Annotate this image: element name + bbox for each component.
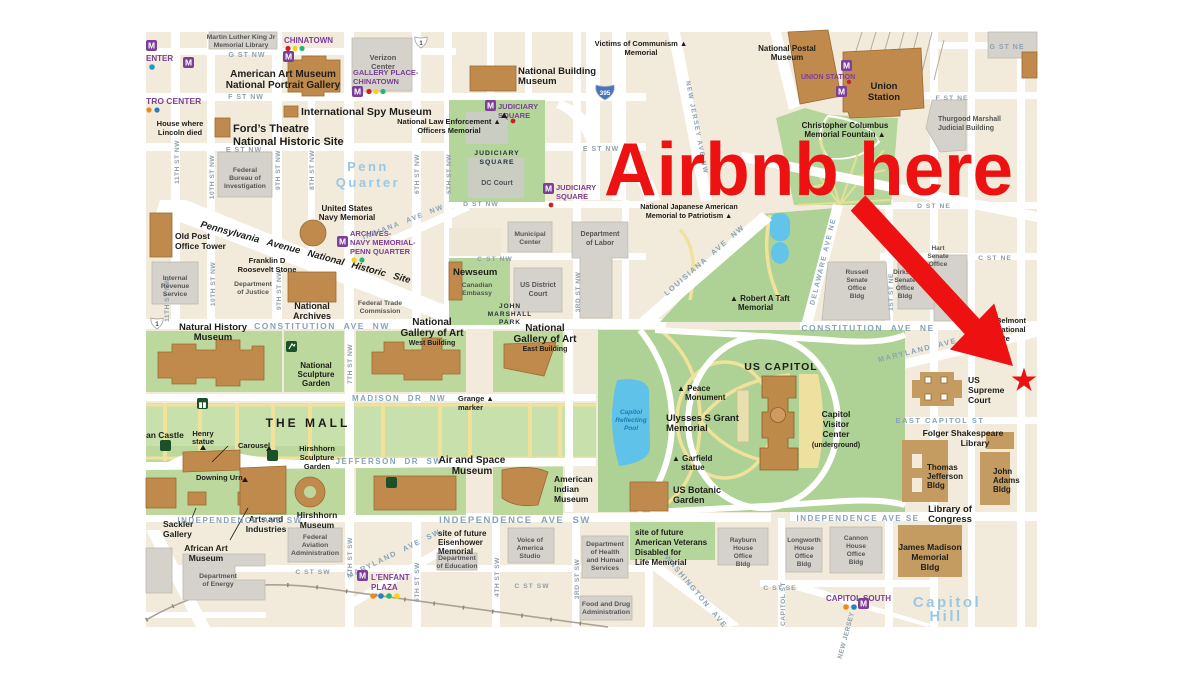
svg-text:American Art Museum: American Art Museum	[230, 69, 336, 80]
svg-text:National Portrait Gallery: National Portrait Gallery	[226, 80, 341, 91]
svg-text:Bldg: Bldg	[850, 293, 864, 300]
svg-text:Monument: Monument	[685, 393, 726, 402]
svg-text:Hirshhorn: Hirshhorn	[299, 444, 335, 453]
svg-text:Garden: Garden	[304, 462, 331, 471]
svg-text:M: M	[545, 184, 552, 194]
svg-text:Newseum: Newseum	[453, 267, 497, 278]
svg-text:M: M	[354, 87, 361, 97]
svg-text:National: National	[294, 301, 330, 311]
svg-text:Supreme: Supreme	[968, 385, 1005, 395]
svg-text:8TH ST NW: 8TH ST NW	[309, 150, 316, 190]
svg-text:JUDICIARY: JUDICIARY	[498, 102, 538, 111]
svg-text:Adams: Adams	[993, 476, 1020, 485]
svg-text:Garden: Garden	[302, 379, 330, 388]
svg-text:3RD ST NW: 3RD ST NW	[575, 271, 582, 312]
svg-text:TRO CENTER: TRO CENTER	[146, 96, 201, 106]
svg-text:SQUARE: SQUARE	[479, 159, 514, 166]
svg-text:Garden: Garden	[673, 495, 705, 505]
svg-text:Archives: Archives	[293, 311, 331, 321]
svg-text:Office: Office	[929, 261, 948, 268]
svg-text:C ST NE: C ST NE	[978, 255, 1012, 262]
svg-text:Bureau of: Bureau of	[229, 175, 261, 182]
svg-text:CHINATOWN: CHINATOWN	[284, 36, 333, 45]
svg-text:Court: Court	[968, 395, 991, 405]
svg-text:Memorial to Patriotism ▲: Memorial to Patriotism ▲	[646, 211, 733, 220]
svg-text:M: M	[148, 41, 155, 51]
svg-text:▲ Peace: ▲ Peace	[677, 384, 711, 393]
svg-text:F ST NW: F ST NW	[228, 94, 264, 101]
svg-text:Eisenhower: Eisenhower	[438, 538, 483, 547]
svg-text:CONSTITUTION AVE NE: CONSTITUTION AVE NE	[801, 323, 934, 333]
svg-text:Congress: Congress	[928, 514, 972, 525]
svg-text:Department: Department	[581, 231, 621, 238]
svg-text:395: 395	[600, 90, 611, 97]
svg-text:Department: Department	[438, 555, 477, 562]
svg-text:statue: statue	[681, 463, 705, 472]
svg-text:Belmont: Belmont	[996, 316, 1027, 325]
svg-text:INDEPENDENCE AVE SW: INDEPENDENCE AVE SW	[177, 516, 302, 525]
svg-text:Reflecting: Reflecting	[615, 417, 646, 424]
svg-text:Voice of: Voice of	[517, 537, 544, 544]
svg-text:Office: Office	[847, 551, 866, 558]
svg-text:House: House	[794, 545, 814, 552]
svg-text:Administration: Administration	[291, 550, 339, 557]
svg-text:Services: Services	[591, 565, 619, 572]
svg-text:Center: Center	[519, 239, 541, 246]
svg-text:Sculpture: Sculpture	[300, 453, 335, 462]
svg-text:Federal: Federal	[233, 167, 257, 174]
svg-text:of Education: of Education	[436, 563, 477, 570]
svg-text:7TH ST SW: 7TH ST SW	[347, 537, 354, 577]
svg-text:MARSHALL: MARSHALL	[488, 311, 532, 318]
svg-text:EAST CAPITOL ST: EAST CAPITOL ST	[895, 416, 984, 425]
svg-text:US CAPITOL: US CAPITOL	[744, 361, 817, 373]
svg-text:3RD ST SW: 3RD ST SW	[574, 559, 581, 600]
svg-text:National Postal: National Postal	[758, 44, 816, 53]
svg-text:African Art: African Art	[184, 543, 228, 553]
svg-text:Navy Memorial: Navy Memorial	[319, 213, 375, 222]
svg-text:American Veterans: American Veterans	[635, 538, 708, 547]
svg-text:Administration: Administration	[582, 609, 630, 616]
svg-text:Food and Drug: Food and Drug	[582, 601, 630, 608]
svg-text:House where: House where	[157, 119, 204, 128]
svg-text:Indian: Indian	[554, 484, 579, 494]
svg-text:INDEPENDENCE AVE SW: INDEPENDENCE AVE SW	[439, 515, 591, 526]
svg-text:East Building: East Building	[523, 346, 568, 353]
svg-text:Service: Service	[163, 291, 187, 298]
svg-text:JUDICIARY: JUDICIARY	[556, 183, 596, 192]
svg-text:THE MALL: THE MALL	[266, 416, 351, 430]
svg-text:Gallery: Gallery	[163, 529, 192, 539]
svg-text:of Health: of Health	[590, 549, 619, 556]
svg-text:C ST SW: C ST SW	[295, 569, 330, 576]
svg-text:Roosevelt Stone: Roosevelt Stone	[238, 265, 297, 274]
svg-text:Museum: Museum	[189, 553, 224, 563]
svg-text:site of future: site of future	[635, 528, 684, 537]
svg-text:D ST NW: D ST NW	[463, 201, 499, 208]
svg-text:Ford’s Theatre: Ford’s Theatre	[233, 123, 309, 135]
svg-text:Department: Department	[586, 541, 625, 548]
svg-text:Memorial Library: Memorial Library	[214, 42, 269, 49]
svg-text:10TH ST NW: 10TH ST NW	[210, 262, 217, 306]
svg-text:UNION STATION: UNION STATION	[801, 74, 855, 81]
svg-text:Municipal: Municipal	[514, 231, 545, 238]
svg-text:National: National	[412, 317, 452, 328]
svg-text:Carousel: Carousel	[238, 441, 270, 450]
svg-text:M: M	[339, 237, 346, 247]
svg-text:Museum: Museum	[554, 494, 589, 504]
svg-text:Memorial: Memorial	[911, 552, 948, 562]
svg-text:JUDICIARY: JUDICIARY	[474, 150, 519, 157]
svg-text:Bldg: Bldg	[849, 559, 863, 566]
svg-text:Museum: Museum	[518, 76, 557, 87]
svg-text:Museum: Museum	[771, 53, 803, 62]
svg-text:Museum: Museum	[194, 332, 233, 343]
svg-text:Office: Office	[795, 553, 814, 560]
svg-text:Union: Union	[871, 81, 898, 92]
svg-text:INDEPENDENCE AVE SE: INDEPENDENCE AVE SE	[796, 514, 919, 523]
svg-text:SQUARE: SQUARE	[556, 192, 588, 201]
svg-text:▲ Robert A Taft: ▲ Robert A Taft	[730, 294, 790, 303]
svg-text:E ST NW: E ST NW	[226, 147, 262, 154]
svg-text:ENTER: ENTER	[146, 54, 173, 63]
svg-text:Department: Department	[199, 573, 238, 580]
svg-text:Bldg: Bldg	[927, 481, 945, 490]
svg-text:Verizon: Verizon	[370, 53, 397, 62]
svg-text:Commission: Commission	[360, 308, 401, 315]
svg-text:G ST NW: G ST NW	[229, 52, 266, 59]
svg-text:Court: Court	[529, 291, 548, 298]
svg-text:C ST NW: C ST NW	[477, 256, 513, 263]
svg-text:Gallery of Art: Gallery of Art	[401, 328, 465, 339]
svg-text:of Justice: of Justice	[237, 289, 269, 296]
svg-text:M: M	[185, 58, 192, 68]
svg-text:US Botanic: US Botanic	[673, 485, 721, 495]
svg-text:PARK: PARK	[499, 319, 521, 326]
svg-text:West Building: West Building	[409, 340, 456, 347]
svg-text:Senate: Senate	[927, 253, 949, 260]
svg-text:G ST NE: G ST NE	[989, 44, 1024, 51]
svg-text:9TH ST NW: 9TH ST NW	[275, 150, 282, 190]
svg-text:John: John	[993, 467, 1012, 476]
svg-text:GALLERY PLACE-: GALLERY PLACE-	[353, 68, 419, 77]
svg-text:CAPITOL ST: CAPITOL ST	[780, 582, 787, 626]
svg-text:PENN QUARTER: PENN QUARTER	[350, 247, 411, 256]
svg-text:CHINATOWN: CHINATOWN	[353, 77, 399, 86]
svg-text:Memorial: Memorial	[738, 303, 773, 312]
svg-text:Victims of Communism ▲: Victims of Communism ▲	[595, 39, 688, 48]
svg-text:Federal: Federal	[303, 534, 327, 541]
svg-text:Quarter: Quarter	[336, 175, 400, 190]
svg-text:Thomas: Thomas	[927, 463, 958, 472]
svg-text:House: House	[733, 545, 753, 552]
svg-text:of Labor: of Labor	[586, 240, 614, 247]
svg-text:▮▮: ▮▮	[199, 402, 207, 409]
svg-text:Center: Center	[823, 429, 851, 439]
svg-text:Pool: Pool	[624, 425, 638, 432]
svg-text:Memorial: Memorial	[666, 423, 708, 434]
svg-text:Bldg: Bldg	[736, 561, 750, 568]
svg-text:Russell: Russell	[845, 269, 868, 276]
svg-text:▲ Garfield: ▲ Garfield	[672, 454, 712, 463]
svg-text:C ST SW: C ST SW	[514, 583, 549, 590]
svg-text:DC Court: DC Court	[481, 178, 513, 187]
svg-text:America: America	[517, 545, 544, 552]
svg-text:Air and Space: Air and Space	[439, 455, 506, 466]
svg-text:JOHN: JOHN	[499, 303, 521, 310]
svg-text:and Human: and Human	[586, 557, 623, 564]
svg-text:Gallery of Art: Gallery of Art	[514, 334, 578, 345]
svg-text:JEFFERSON DR SW: JEFFERSON DR SW	[336, 457, 443, 466]
svg-text:Canadian: Canadian	[462, 282, 493, 289]
svg-text:Senate: Senate	[846, 277, 868, 284]
svg-text:Martin Luther King Jr: Martin Luther King Jr	[207, 34, 276, 41]
svg-text:Aviation: Aviation	[302, 542, 329, 549]
svg-text:National: National	[300, 361, 332, 370]
svg-text:Senate: Senate	[894, 277, 916, 284]
svg-text:Memorial: Memorial	[625, 48, 658, 57]
svg-text:F ST NE: F ST NE	[935, 95, 968, 102]
svg-text:11TH ST NW: 11TH ST NW	[174, 140, 181, 184]
svg-text:(underground): (underground)	[812, 442, 860, 449]
svg-text:Rayburn: Rayburn	[730, 537, 756, 544]
svg-text:Investigation: Investigation	[224, 183, 266, 190]
svg-text:Library: Library	[961, 438, 990, 448]
svg-text:Cannon: Cannon	[844, 535, 868, 542]
svg-text:Office: Office	[734, 553, 753, 560]
svg-text:M: M	[487, 101, 494, 111]
svg-text:PLAZA: PLAZA	[371, 583, 398, 592]
svg-text:marker: marker	[458, 403, 483, 412]
svg-text:4TH ST SW: 4TH ST SW	[494, 557, 501, 597]
svg-text:Federal Trade: Federal Trade	[358, 300, 402, 307]
svg-text:Franklin D: Franklin D	[249, 256, 286, 265]
svg-text:James Madison: James Madison	[898, 542, 961, 552]
svg-text:Bldg: Bldg	[993, 485, 1011, 494]
svg-text:Bldg: Bldg	[797, 561, 811, 568]
svg-text:Department: Department	[234, 281, 273, 288]
svg-text:Visitor: Visitor	[823, 419, 850, 429]
svg-text:NAVY MEMORIAL-: NAVY MEMORIAL-	[350, 238, 416, 247]
svg-text:M: M	[838, 87, 845, 97]
svg-text:Internal: Internal	[163, 275, 188, 282]
svg-text:National Law Enforcement ▲: National Law Enforcement ▲	[397, 117, 501, 126]
svg-text:Hart: Hart	[931, 245, 945, 252]
svg-text:Office: Office	[848, 285, 867, 292]
svg-text:United States: United States	[321, 204, 373, 213]
svg-text:Capitol: Capitol	[620, 409, 642, 416]
svg-text:L’ENFANT: L’ENFANT	[371, 573, 410, 582]
svg-text:Airbnb here: Airbnb here	[604, 127, 1013, 211]
svg-text:Station: Station	[868, 92, 900, 103]
svg-text:Hirshhorn: Hirshhorn	[297, 510, 338, 520]
svg-text:10TH ST NW: 10TH ST NW	[209, 155, 216, 199]
svg-text:Officers Memorial: Officers Memorial	[417, 126, 480, 135]
svg-text:US District: US District	[520, 282, 556, 289]
svg-text:1ST ST NE: 1ST ST NE	[888, 273, 895, 311]
svg-text:site of future: site of future	[438, 529, 487, 538]
svg-text:Penn: Penn	[347, 159, 389, 174]
svg-text:6TH ST SW: 6TH ST SW	[414, 562, 421, 602]
svg-text:Bldg: Bldg	[898, 293, 912, 300]
svg-text:Museum: Museum	[300, 520, 335, 530]
svg-text:Disabled for: Disabled for	[635, 548, 681, 557]
svg-text:Museum: Museum	[452, 466, 493, 477]
svg-text:an Castle: an Castle	[146, 430, 184, 440]
svg-text:Office: Office	[896, 285, 915, 292]
svg-text:Studio: Studio	[519, 553, 540, 560]
svg-text:Sculpture: Sculpture	[298, 370, 335, 379]
svg-text:Folger Shakespeare: Folger Shakespeare	[923, 428, 1004, 438]
svg-text:Office Tower: Office Tower	[175, 241, 227, 251]
svg-text:7TH ST NW: 7TH ST NW	[347, 344, 354, 384]
svg-text:of Energy: of Energy	[202, 581, 234, 588]
svg-text:statue: statue	[192, 437, 214, 446]
svg-text:House: House	[846, 543, 866, 550]
svg-text:9TH ST NW: 9TH ST NW	[276, 270, 283, 310]
svg-text:Downing Urn: Downing Urn	[196, 473, 243, 482]
svg-text:US: US	[968, 375, 980, 385]
svg-text:Lincoln died: Lincoln died	[158, 128, 203, 137]
svg-text:CONSTITUTION AVE NW: CONSTITUTION AVE NW	[254, 321, 390, 331]
svg-text:Old Post: Old Post	[175, 231, 210, 241]
svg-text:Revenue: Revenue	[161, 283, 190, 290]
svg-text:M: M	[285, 52, 292, 62]
svg-text:Longworth: Longworth	[787, 537, 821, 544]
svg-text:Hill: Hill	[929, 608, 962, 625]
svg-text:Grange ▲: Grange ▲	[458, 394, 494, 403]
svg-text:M: M	[359, 571, 366, 581]
svg-text:Jefferson: Jefferson	[927, 472, 963, 481]
svg-text:6TH ST NW: 6TH ST NW	[414, 154, 421, 194]
svg-text:Embassy: Embassy	[462, 290, 492, 297]
svg-text:Industries: Industries	[246, 524, 287, 534]
svg-text:MADISON DR NW: MADISON DR NW	[352, 394, 446, 403]
svg-text:M: M	[860, 599, 867, 609]
svg-text:American: American	[554, 474, 593, 484]
svg-text:M: M	[843, 61, 850, 71]
svg-text:5TH ST NW: 5TH ST NW	[446, 154, 453, 194]
svg-text:Bldg: Bldg	[921, 562, 940, 572]
svg-text:Capitol: Capitol	[822, 409, 851, 419]
svg-text:Thurgood Marshall: Thurgood Marshall	[938, 116, 1001, 123]
svg-text:National: National	[525, 323, 565, 334]
